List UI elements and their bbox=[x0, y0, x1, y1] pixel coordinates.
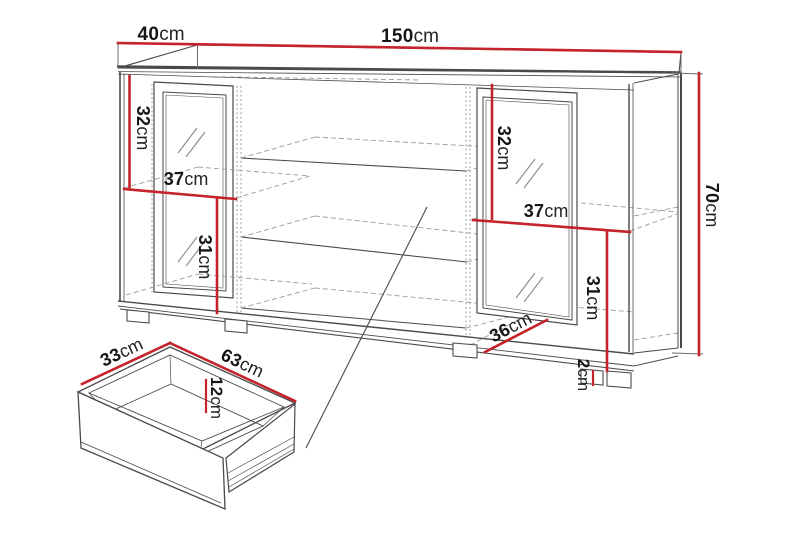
label-left-31cm: 31cm bbox=[195, 235, 215, 280]
diagram-canvas: 40cm 150cm 70cm 32cm 37cm 31cm 32cm 37cm… bbox=[0, 0, 800, 533]
foot-3 bbox=[453, 343, 477, 358]
label-right-32cm: 32cm bbox=[494, 126, 514, 171]
drawer-leader-line bbox=[306, 207, 427, 448]
right-side-top-edge bbox=[634, 74, 678, 83]
foot-2 bbox=[225, 319, 247, 333]
cabinet-drawing bbox=[117, 45, 681, 388]
label-width-150cm: 150cm bbox=[381, 26, 439, 47]
label-drawer-12cm: 12cm bbox=[207, 377, 226, 419]
middle-shelf-upper bbox=[241, 158, 466, 171]
label-depth-40cm: 40cm bbox=[137, 24, 184, 45]
label-left-32cm: 32cm bbox=[133, 106, 153, 151]
label-plinth-2cm: 2cm bbox=[574, 359, 593, 391]
middle-shelf-lower bbox=[241, 237, 467, 262]
plinth-right-return bbox=[634, 356, 678, 366]
foot-5 bbox=[607, 371, 631, 388]
label-height-70cm: 70cm bbox=[702, 183, 722, 228]
label-left-37cm: 37cm bbox=[164, 169, 209, 189]
label-right-37cm: 37cm bbox=[524, 201, 569, 221]
right-side-bottom-edge bbox=[634, 348, 678, 353]
top-hidden-back-edge bbox=[205, 77, 420, 81]
right-partition-dotted bbox=[466, 87, 470, 337]
label-right-31cm: 31cm bbox=[583, 276, 603, 321]
foot-1 bbox=[127, 310, 149, 323]
left-partition-dotted bbox=[237, 86, 241, 313]
dimension-diagram: 40cm 150cm 70cm 32cm 37cm 31cm 32cm 37cm… bbox=[0, 0, 800, 533]
